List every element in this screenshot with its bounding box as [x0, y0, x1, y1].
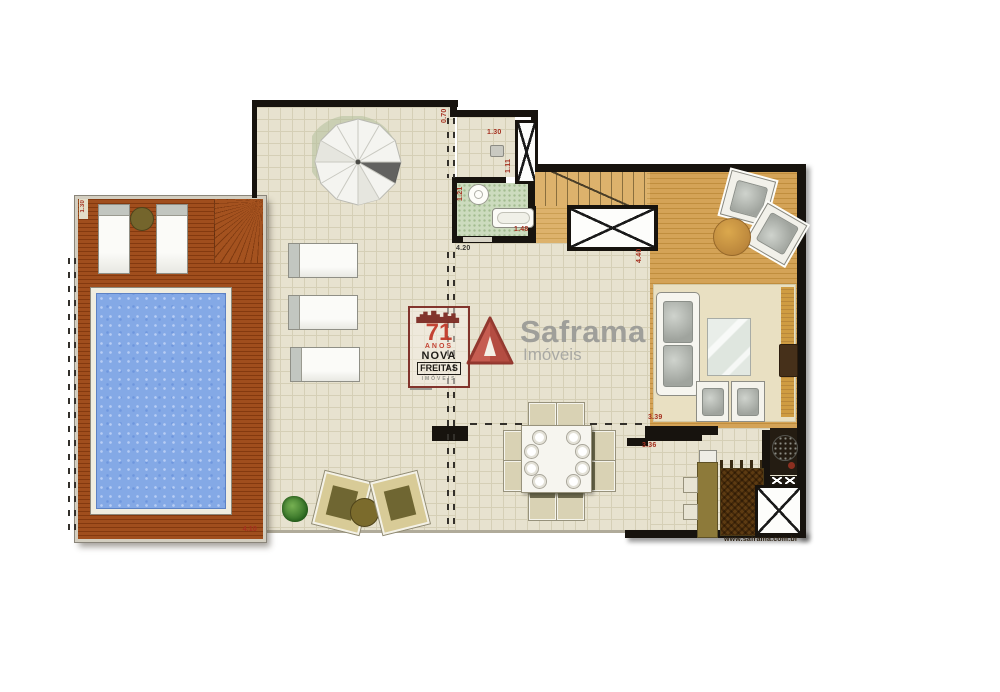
- stair-direction-line: [535, 172, 647, 206]
- projection-dashes-left: [74, 258, 76, 530]
- saframa-logo-icon: [466, 316, 514, 366]
- badge-nova: NOVA: [422, 350, 457, 362]
- badge-fineprint: [410, 388, 432, 390]
- staircase: [535, 172, 647, 206]
- utensil: [788, 462, 795, 469]
- wall: [252, 100, 458, 107]
- patio-sun-lounger: [288, 295, 358, 330]
- dimension-label: 1.48: [514, 226, 528, 233]
- stool: [683, 477, 698, 493]
- stool: [683, 504, 698, 520]
- grill: [772, 435, 798, 461]
- shower: [468, 184, 489, 205]
- deck-sun-lounger: [156, 204, 188, 274]
- wall: [252, 100, 257, 198]
- deck-fan-boards: [214, 199, 263, 263]
- pool-deck: 1.30 4.10: [75, 196, 266, 542]
- brand-type: Imóveis: [523, 345, 582, 365]
- badge-freitas: FREITAS: [417, 362, 461, 375]
- bathroom-door-gap: [463, 237, 492, 242]
- projection-dashes-left: [68, 258, 70, 530]
- website-url: www.saframa.com.br: [724, 536, 798, 543]
- dimension-label: 1.30: [80, 200, 86, 212]
- dining-chair: [589, 431, 615, 461]
- dimension-label: 4.20: [456, 245, 470, 252]
- service-shaft: [755, 485, 803, 536]
- wall: [528, 164, 806, 172]
- vestibule-dashed-wall: [453, 118, 455, 178]
- deck-dim-patch: 1.30: [79, 199, 88, 219]
- badge-imoveis: IMÓVEIS: [422, 376, 457, 382]
- wall-stub: [432, 426, 468, 441]
- pool: [90, 287, 232, 515]
- sofa: [656, 292, 700, 396]
- dining-chair: [589, 461, 615, 491]
- kitchen-counter-wall: [645, 426, 702, 441]
- plant: [282, 496, 308, 522]
- dimension-label: 1.11: [505, 153, 512, 173]
- wall: [452, 110, 538, 117]
- badge-anos: ANOS: [425, 343, 453, 350]
- glass-coffee-table: [707, 318, 751, 376]
- kitchen-counter-wall: [700, 426, 718, 435]
- side-table: [779, 344, 798, 377]
- dimension-label: 4.10: [243, 526, 257, 533]
- dimension-label: 3.39: [648, 414, 662, 421]
- ottoman: [696, 381, 729, 422]
- patio-sun-lounger: [290, 347, 360, 382]
- dimension-label: 4.40: [636, 243, 643, 263]
- dining-chair: [557, 492, 584, 520]
- dining-chair: [529, 492, 556, 520]
- dining-table: [521, 425, 592, 493]
- vestibule-dashed-wall: [447, 118, 449, 178]
- nova-freitas-badge: 71 ANOS NOVA FREITAS IMÓVEIS: [408, 306, 470, 388]
- dimension-label: 1.21: [457, 181, 464, 201]
- patio-sun-lounger: [288, 243, 358, 278]
- barbecue: [770, 428, 797, 475]
- bar-stool-posts: [720, 460, 762, 468]
- badge-years: 71: [426, 323, 453, 343]
- washbasin: [490, 145, 504, 157]
- projection-dashes-center: [447, 252, 449, 532]
- kitchen-counter: [697, 462, 718, 538]
- ottoman: [731, 381, 765, 422]
- deck-sun-lounger: [98, 204, 130, 274]
- living-round-table: [713, 218, 751, 256]
- dimension-label: 3.36: [642, 442, 656, 449]
- vent-band: [770, 476, 797, 485]
- elevator-shaft: [567, 205, 658, 251]
- deck-side-table: [130, 207, 154, 231]
- dimension-label: 0.70: [441, 103, 448, 123]
- projection-dashes-center: [453, 252, 455, 532]
- dimension-label: 1.30: [487, 129, 501, 136]
- patio-umbrella: [312, 116, 404, 208]
- bathtub: [492, 208, 534, 228]
- pool-water: [96, 293, 226, 509]
- floorplan-image: 1.30 4.10: [0, 0, 1000, 692]
